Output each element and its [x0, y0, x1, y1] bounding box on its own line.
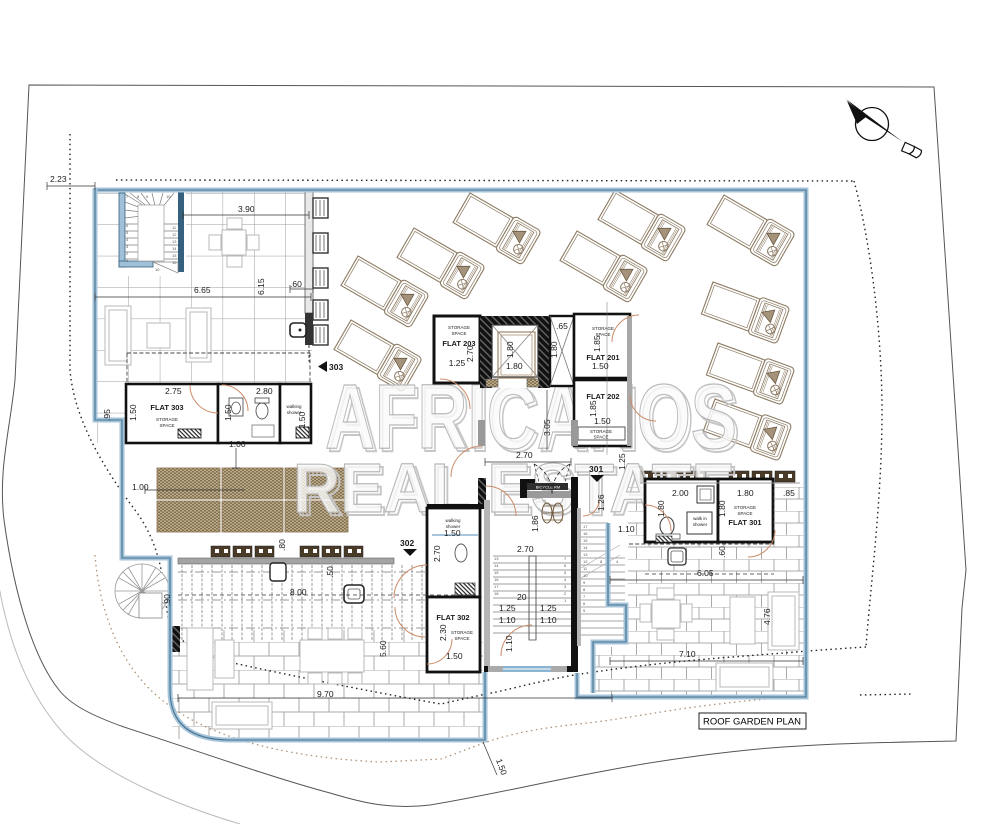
svg-text:16: 16: [494, 577, 499, 582]
svg-text:SPACE: SPACE: [452, 331, 467, 336]
svg-text:1.10: 1.10: [504, 635, 514, 652]
svg-text:2.75: 2.75: [165, 386, 182, 396]
svg-text:10: 10: [155, 267, 160, 272]
svg-text:15: 15: [494, 570, 499, 575]
svg-text:14: 14: [494, 563, 499, 568]
svg-text:2.70: 2.70: [516, 450, 533, 460]
svg-text:302: 302: [400, 538, 414, 548]
svg-text:7.10: 7.10: [679, 649, 696, 659]
svg-text:shower: shower: [287, 410, 302, 415]
svg-text:1.50: 1.50: [594, 416, 611, 426]
svg-text:FLAT 202: FLAT 202: [586, 392, 619, 401]
svg-text:1.80: 1.80: [656, 500, 666, 517]
svg-text:9.70: 9.70: [317, 689, 334, 699]
svg-text:18: 18: [494, 591, 499, 596]
svg-text:14: 14: [583, 545, 588, 550]
svg-text:BICYCLE RM: BICYCLE RM: [536, 485, 560, 490]
svg-text:4.76: 4.76: [762, 608, 772, 625]
svg-text:10: 10: [583, 573, 588, 578]
svg-text:15: 15: [172, 253, 177, 258]
svg-text:2.80: 2.80: [256, 386, 273, 396]
svg-text:12: 12: [583, 559, 588, 564]
svg-text:16: 16: [172, 260, 177, 265]
svg-text:SPACE: SPACE: [738, 511, 753, 516]
svg-text:walk in: walk in: [693, 516, 707, 521]
svg-text:1.80: 1.80: [717, 500, 727, 517]
svg-text:17: 17: [583, 524, 588, 529]
svg-text:16: 16: [583, 531, 588, 536]
svg-text:1.10: 1.10: [499, 615, 516, 625]
svg-text:shower: shower: [446, 524, 461, 529]
svg-text:6.05: 6.05: [697, 568, 714, 578]
svg-text:1.25: 1.25: [449, 358, 466, 368]
svg-text:12: 12: [172, 232, 177, 237]
svg-text:1.86: 1.86: [530, 515, 540, 532]
svg-text:STORAGE: STORAGE: [451, 630, 473, 635]
svg-text:20: 20: [517, 592, 527, 602]
svg-text:walking: walking: [445, 518, 461, 523]
svg-text:1.10: 1.10: [618, 524, 635, 534]
svg-text:15: 15: [583, 538, 588, 543]
svg-text:SPACE: SPACE: [455, 636, 470, 641]
svg-text:.85: .85: [783, 488, 795, 498]
svg-text:STORAGE: STORAGE: [590, 429, 612, 434]
svg-text:2.70: 2.70: [517, 544, 534, 554]
svg-text:.60: .60: [290, 279, 302, 289]
svg-text:10: 10: [166, 194, 171, 199]
svg-text:1.85: 1.85: [592, 335, 602, 352]
svg-text:6.65: 6.65: [194, 285, 211, 295]
svg-text:303: 303: [329, 362, 343, 372]
svg-text:1.80: 1.80: [549, 341, 559, 358]
svg-text:8.00: 8.00: [290, 587, 307, 597]
svg-text:1.26: 1.26: [596, 494, 606, 511]
svg-text:2.00: 2.00: [672, 488, 689, 498]
svg-text:.80: .80: [277, 539, 287, 551]
svg-text:STORAGE: STORAGE: [734, 505, 756, 510]
svg-text:1.10: 1.10: [540, 615, 557, 625]
svg-text:1.80: 1.80: [506, 361, 523, 371]
svg-text:FLAT 302: FLAT 302: [436, 613, 469, 622]
svg-text:2.70: 2.70: [432, 545, 442, 562]
svg-text:1.50: 1.50: [592, 361, 609, 371]
svg-text:1.50: 1.50: [446, 651, 463, 661]
svg-text:1.50: 1.50: [128, 404, 138, 421]
svg-text:.90: .90: [162, 594, 172, 606]
svg-text:SPACE: SPACE: [594, 435, 609, 440]
svg-text:SPACE: SPACE: [160, 423, 175, 428]
svg-text:1.25: 1.25: [499, 603, 516, 613]
svg-text:1.25: 1.25: [540, 603, 557, 613]
svg-text:1.80: 1.80: [737, 488, 754, 498]
svg-text:5.60: 5.60: [378, 640, 388, 657]
svg-text:13: 13: [172, 239, 177, 244]
svg-text:3.90: 3.90: [238, 204, 255, 214]
svg-text:shower: shower: [693, 522, 708, 527]
svg-text:6.15: 6.15: [256, 278, 266, 295]
svg-text:FLAT 301: FLAT 301: [728, 518, 761, 527]
svg-text:FLAT 201: FLAT 201: [586, 353, 619, 362]
svg-text:1.85: 1.85: [588, 400, 598, 417]
svg-text:13: 13: [583, 552, 588, 557]
svg-text:walking: walking: [286, 404, 302, 409]
svg-text:.50: .50: [325, 566, 335, 578]
svg-text:STORAGE: STORAGE: [156, 417, 178, 422]
svg-text:14: 14: [172, 246, 177, 251]
svg-text:.65: .65: [556, 321, 568, 331]
svg-text:STORAGE: STORAGE: [592, 326, 614, 331]
svg-text:1.50: 1.50: [223, 404, 233, 421]
svg-text:17: 17: [494, 584, 499, 589]
svg-text:ROOF GARDEN PLAN: ROOF GARDEN PLAN: [703, 717, 801, 728]
svg-text:FLAT 303: FLAT 303: [150, 403, 183, 412]
svg-text:SPACE: SPACE: [596, 332, 611, 337]
svg-text:STORAGE: STORAGE: [448, 325, 470, 330]
svg-text:.95: .95: [102, 409, 112, 421]
svg-text:1.00: 1.00: [132, 482, 149, 492]
svg-text:301: 301: [589, 464, 603, 474]
svg-text:.60: .60: [717, 546, 727, 558]
svg-text:1.00: 1.00: [229, 439, 246, 449]
svg-text:1.50: 1.50: [444, 528, 461, 538]
svg-text:1.80: 1.80: [505, 341, 515, 358]
svg-text:13: 13: [494, 556, 499, 561]
svg-text:FLAT 203: FLAT 203: [442, 339, 475, 348]
svg-text:1.25: 1.25: [617, 453, 627, 470]
svg-text:2.23: 2.23: [50, 174, 67, 184]
svg-text:2.30: 2.30: [438, 624, 448, 641]
